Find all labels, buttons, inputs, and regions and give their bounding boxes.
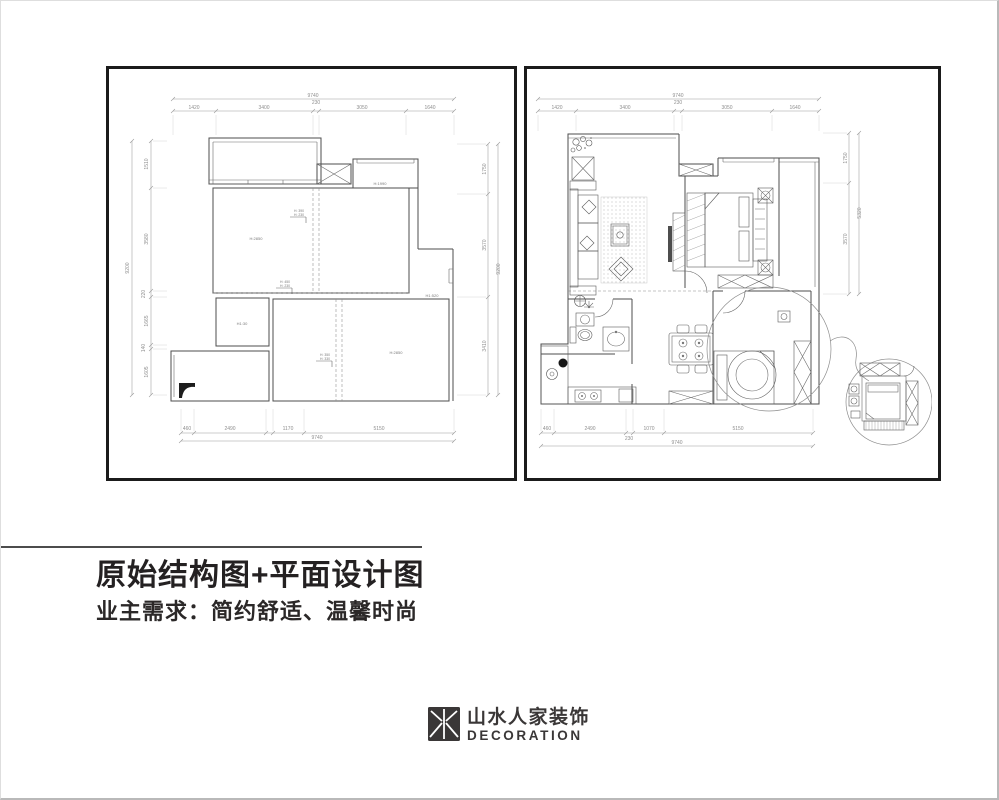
svg-text:3050: 3050 xyxy=(356,105,367,111)
svg-text:1420: 1420 xyxy=(188,105,199,111)
wardrobe xyxy=(718,275,773,288)
living-room xyxy=(213,188,409,293)
svg-text:9200: 9200 xyxy=(125,262,131,273)
svg-text:9740: 9740 xyxy=(672,93,683,99)
svg-text:3570: 3570 xyxy=(482,239,488,250)
svg-text:1605: 1605 xyxy=(144,366,150,377)
logo-text: 山水人家装饰 DECORATION xyxy=(467,707,590,743)
svg-text:230: 230 xyxy=(312,100,321,106)
kitchen xyxy=(171,351,269,401)
window-height-label: H1:520 xyxy=(426,293,440,298)
wardrobe-2 xyxy=(794,341,811,404)
company-logo: 山水人家装饰 DECORATION xyxy=(428,706,590,743)
svg-text:1750: 1750 xyxy=(843,152,849,163)
bedroom-height-label: H:2850 xyxy=(390,350,404,355)
living-height-label: H:2850 xyxy=(250,236,264,241)
sofa xyxy=(570,181,598,307)
dim-top-total: 9740 xyxy=(307,93,318,99)
svg-text:3400: 3400 xyxy=(258,105,269,111)
svg-text:1070: 1070 xyxy=(643,426,654,432)
svg-text:1640: 1640 xyxy=(424,105,435,111)
bathroom-fixtures xyxy=(570,301,629,351)
svg-text:9740: 9740 xyxy=(671,440,682,446)
beam-lines xyxy=(213,188,409,401)
extension-lines xyxy=(538,115,847,431)
toilet-tank xyxy=(570,327,576,343)
page-title: 原始结构图+平面设计图 xyxy=(96,550,425,594)
plant-decor xyxy=(571,136,594,180)
svg-text:5320: 5320 xyxy=(857,207,863,218)
svg-text:5150: 5150 xyxy=(373,426,384,432)
flue-block xyxy=(179,383,195,398)
kitchen-fixtures xyxy=(541,346,636,404)
fridge xyxy=(619,389,633,402)
svg-text:1510: 1510 xyxy=(144,158,150,169)
furniture xyxy=(541,136,811,404)
wok-symbol xyxy=(559,359,568,368)
second-bed xyxy=(714,311,811,404)
svg-text:3580: 3580 xyxy=(144,233,150,244)
section-divider xyxy=(1,546,422,548)
washbasin xyxy=(603,327,629,351)
svg-text:1750: 1750 xyxy=(482,163,488,174)
svg-text:1420: 1420 xyxy=(551,105,562,111)
svg-text:H: 230: H: 230 xyxy=(280,284,290,288)
original-structure-plan-panel: 9740 1420 3400 230 3050 1640 9200 1510 3… xyxy=(106,66,517,481)
svg-text:1665: 1665 xyxy=(144,315,150,326)
svg-text:9200: 9200 xyxy=(496,263,502,274)
bath-height-label: H1:30 xyxy=(237,321,248,326)
svg-text:3050: 3050 xyxy=(721,105,732,111)
balcony xyxy=(209,138,321,184)
master-bed xyxy=(687,188,773,275)
svg-text:3570: 3570 xyxy=(843,233,849,244)
svg-text:H: 230: H: 230 xyxy=(294,213,304,217)
svg-text:1170: 1170 xyxy=(283,426,294,432)
dining-set xyxy=(669,325,713,373)
walls xyxy=(171,138,453,401)
svg-text:H: 330: H: 330 xyxy=(320,357,330,361)
svg-text:3410: 3410 xyxy=(482,340,488,351)
logo-mark-icon xyxy=(428,706,460,742)
bedroom xyxy=(273,299,449,401)
floor-design-plan-panel: 9740 1420 3400 230 3050 1640 1750 3570 5… xyxy=(524,66,941,481)
svg-text:1640: 1640 xyxy=(789,105,800,111)
svg-text:2490: 2490 xyxy=(584,426,595,432)
original-structure-plan-drawing: 9740 1420 3400 230 3050 1640 9200 1510 3… xyxy=(109,69,508,472)
doors-and-axes xyxy=(568,271,745,317)
page-subtitle: 业主需求：简约舒适、温馨时尚 xyxy=(96,594,418,626)
floor-design-plan-drawing: 9740 1420 3400 230 3050 1640 1750 3570 5… xyxy=(527,69,932,472)
callout-leader xyxy=(830,337,869,381)
presentation-page: 9740 1420 3400 230 3050 1640 9200 1510 3… xyxy=(0,0,999,800)
svg-text:2490: 2490 xyxy=(224,426,235,432)
walls xyxy=(541,134,819,404)
extension-lines xyxy=(153,115,486,431)
rug xyxy=(601,197,647,283)
svg-text:220: 220 xyxy=(141,290,147,299)
svg-text:5150: 5150 xyxy=(732,426,743,432)
svg-text:460: 460 xyxy=(183,426,192,432)
svg-text:230: 230 xyxy=(625,436,634,442)
entry-cabinet xyxy=(669,391,713,404)
stove xyxy=(575,390,601,402)
svg-text:460: 460 xyxy=(543,426,552,432)
callout-circle xyxy=(707,287,831,411)
nightstand xyxy=(778,311,790,322)
tv-wall xyxy=(668,213,685,271)
logo-company-name: 山水人家装饰 xyxy=(467,707,590,728)
logo-company-subname: DECORATION xyxy=(467,728,590,743)
svg-text:140: 140 xyxy=(141,344,147,353)
tv xyxy=(668,226,672,262)
svg-text:9740: 9740 xyxy=(311,435,322,441)
svg-text:3400: 3400 xyxy=(619,105,630,111)
storage-height-label: H:1990 xyxy=(374,181,388,186)
svg-text:230: 230 xyxy=(674,100,683,106)
